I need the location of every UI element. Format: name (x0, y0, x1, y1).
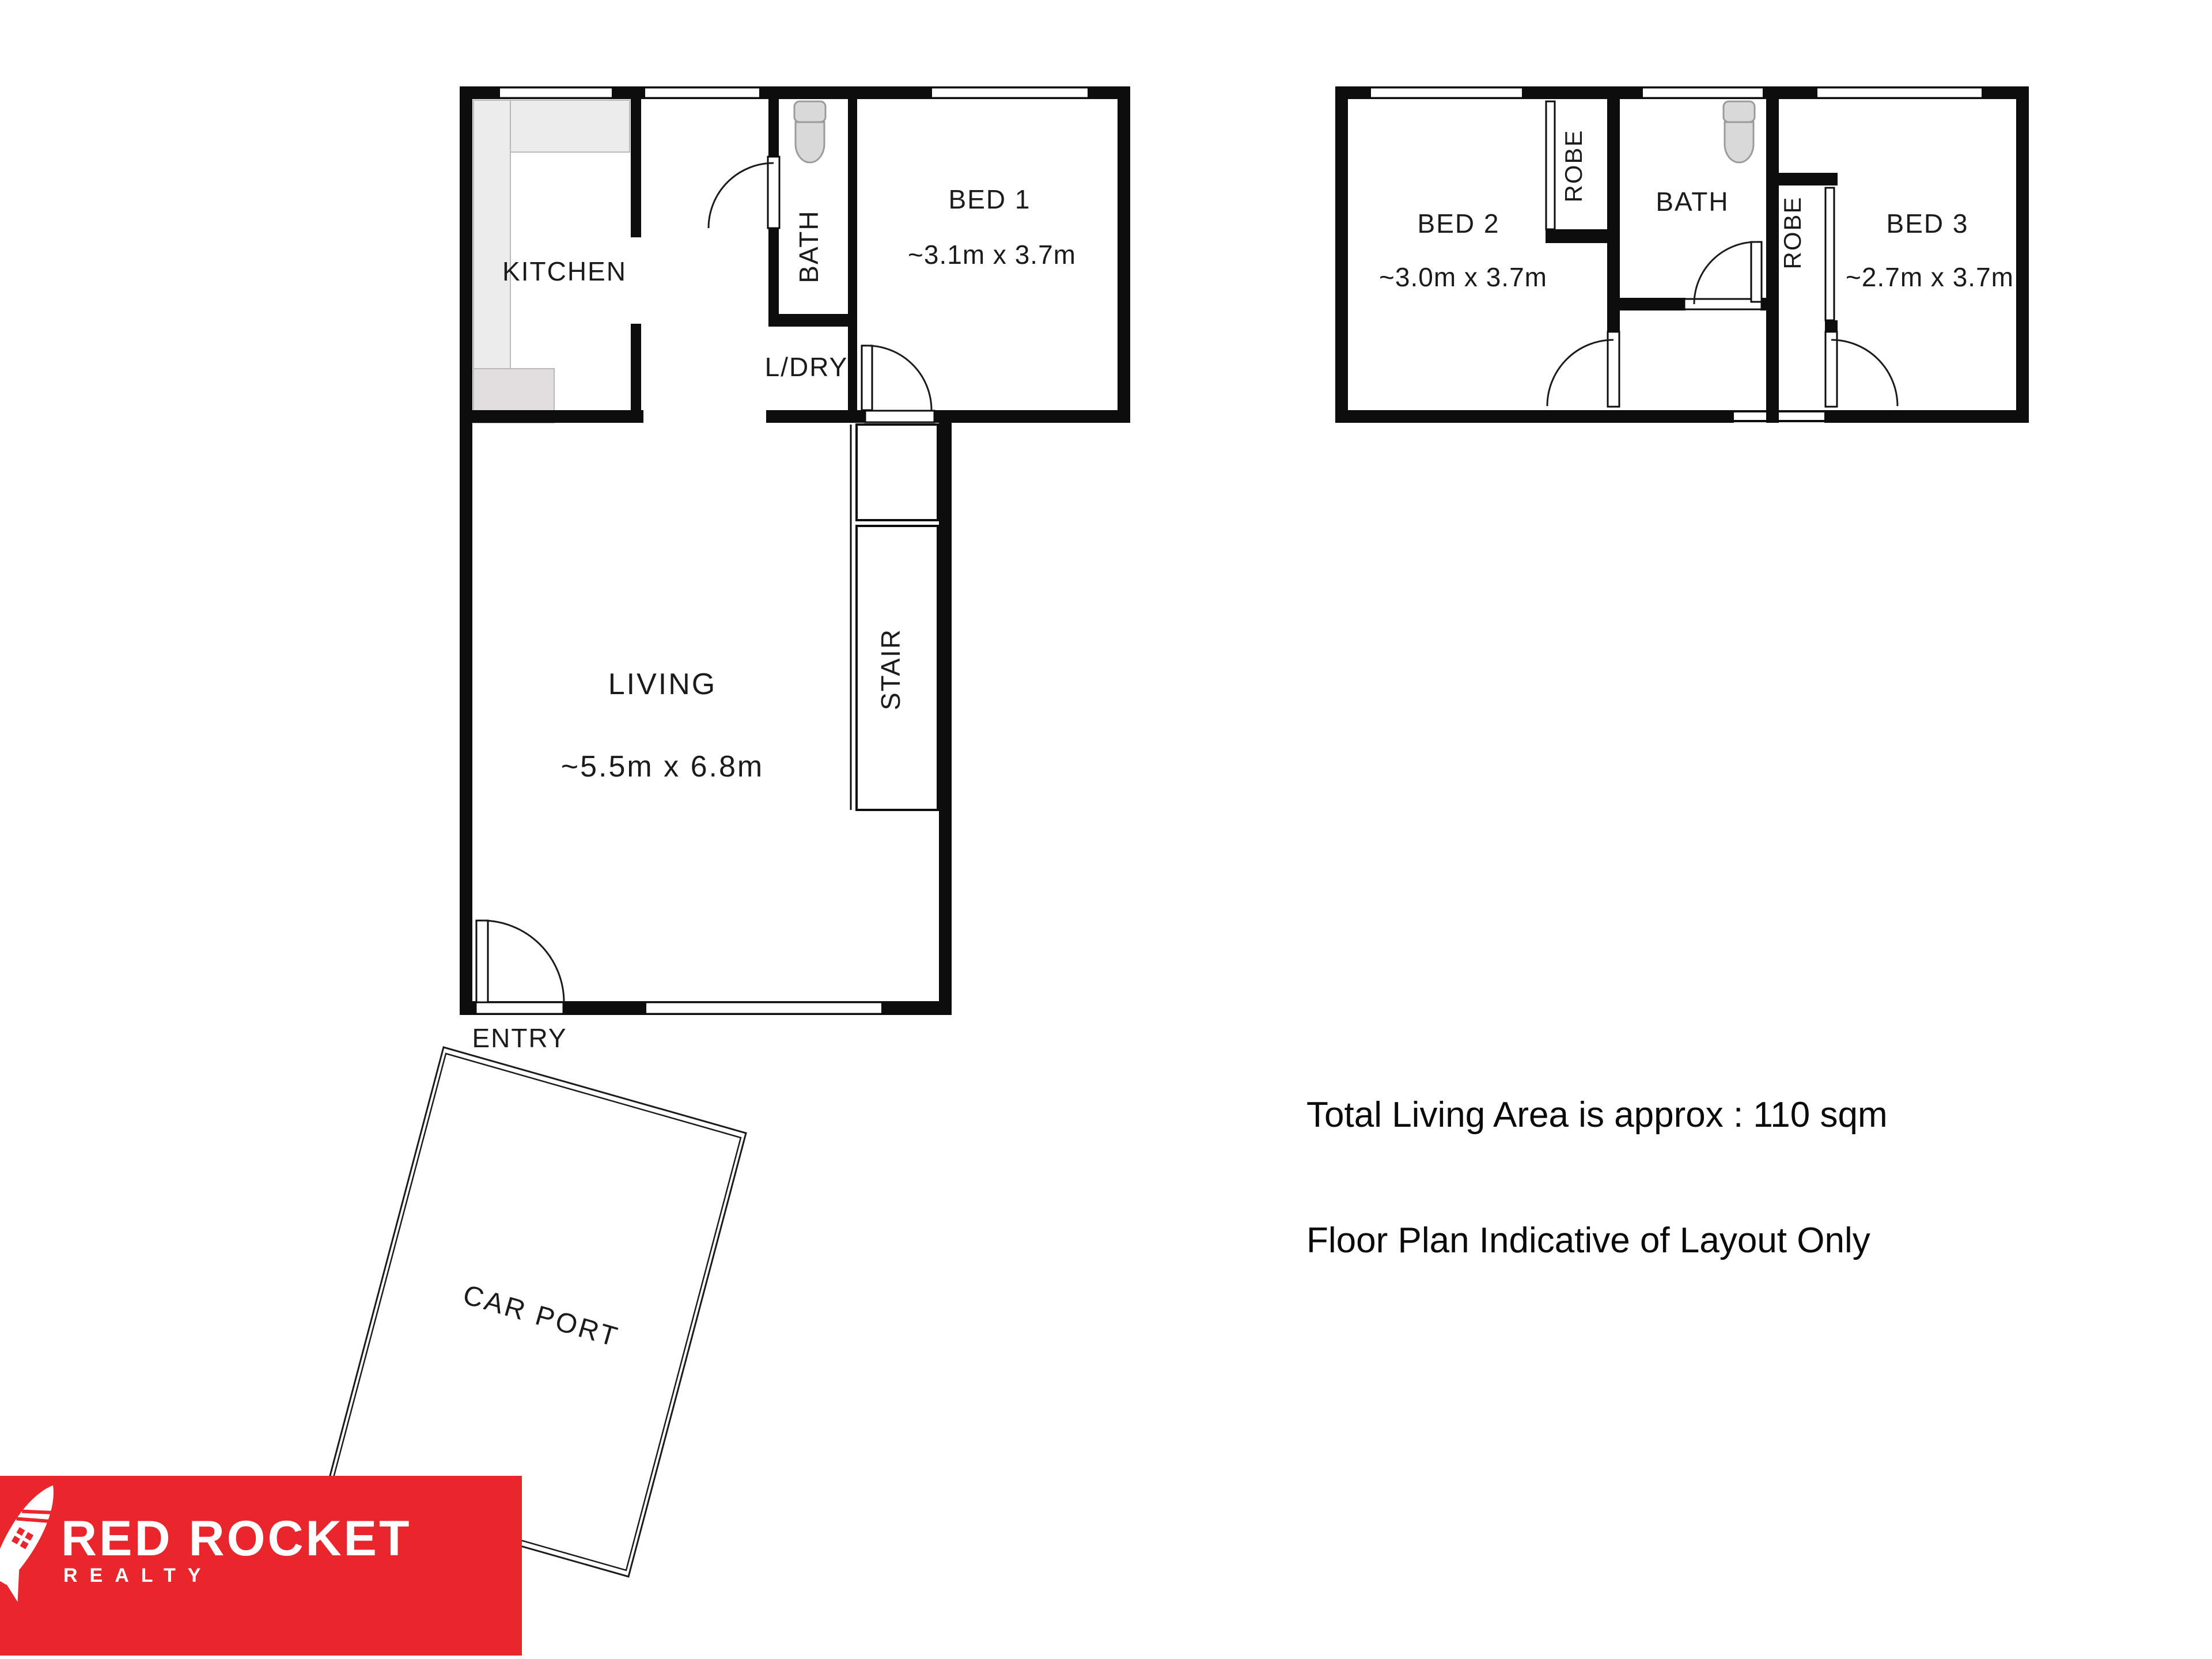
bath-label-ground: BATH (794, 210, 824, 283)
floor-plan-canvas: KITCHEN BATH BED 1 ~3.1m x 3.7m L/DRY LI… (0, 0, 2212, 1659)
annotations: Total Living Area is approx : 110 sqm Fl… (1306, 1095, 1888, 1260)
bed3-label: BED 3 (1887, 209, 1969, 238)
upper-floor-doors (1547, 242, 1897, 407)
brand-logo: RED ROCKET REALTY (0, 1471, 522, 1656)
upper-floor-windows (1371, 89, 1982, 97)
total-area-text: Total Living Area is approx : 110 sqm (1306, 1095, 1888, 1135)
robe-right-label: ROBE (1779, 196, 1806, 269)
toilet-icon-upper (1724, 101, 1755, 162)
entry-label: ENTRY (472, 1023, 567, 1053)
logo-subtitle-text: REALTY (63, 1565, 213, 1586)
bed1-dims: ~3.1m x 3.7m (908, 240, 1076, 270)
upper-floor-plan: BED 2 ~3.0m x 3.7m ROBE BATH ROBE BED 3 … (1335, 86, 2029, 423)
laundry-label: L/DRY (765, 352, 849, 382)
toilet-icon (794, 101, 825, 162)
floor-plan-page: KITCHEN BATH BED 1 ~3.1m x 3.7m L/DRY LI… (0, 0, 2212, 1659)
disclaimer-text: Floor Plan Indicative of Layout Only (1306, 1221, 1870, 1260)
logo-brand-text: RED ROCKET (61, 1511, 412, 1566)
robe-left-label: ROBE (1560, 129, 1587, 202)
stair-label: STAIR (876, 628, 906, 710)
bed1-label: BED 1 (949, 184, 1031, 214)
living-label: LIVING (608, 668, 717, 701)
ground-floor-plan: KITCHEN BATH BED 1 ~3.1m x 3.7m L/DRY LI… (460, 86, 1130, 1053)
stair-shaft (851, 425, 938, 810)
bed2-label: BED 2 (1418, 209, 1500, 238)
bath-label-upper: BATH (1656, 187, 1729, 217)
upper-floor-walls (1335, 86, 2029, 423)
bed3-dims: ~2.7m x 3.7m (1846, 262, 2014, 292)
living-dims: ~5.5m x 6.8m (561, 750, 764, 783)
bed2-dims: ~3.0m x 3.7m (1379, 262, 1547, 292)
kitchen-label: KITCHEN (502, 256, 627, 286)
